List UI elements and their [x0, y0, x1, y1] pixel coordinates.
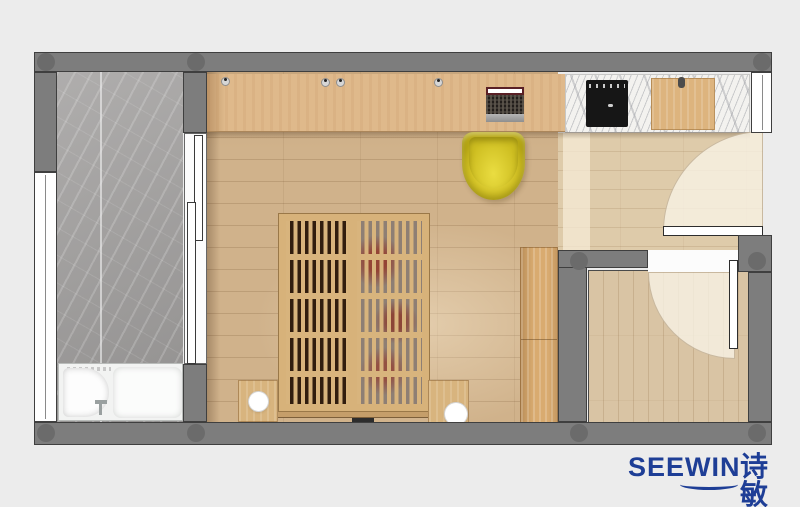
laptop-screen — [486, 87, 524, 95]
desk-grommet — [336, 78, 345, 87]
desk-grommet — [221, 77, 230, 86]
bed-slats-right — [357, 221, 422, 404]
sliding-door-panel — [187, 202, 196, 364]
bathtub-seat-section — [63, 368, 109, 417]
wall-partition-top — [183, 72, 207, 133]
column-dot — [570, 252, 588, 270]
interior-door-leaf — [729, 260, 738, 349]
bathtub — [58, 363, 183, 421]
column-dot — [748, 252, 766, 270]
wall-bottom — [34, 422, 772, 445]
round-lamp-left — [249, 392, 268, 411]
brand-logo-text-cn: 诗敏 — [740, 453, 768, 507]
bathtub-basin-section — [113, 367, 182, 418]
window-mullion — [45, 175, 46, 419]
desk-grommet — [434, 78, 443, 87]
wall-right — [748, 272, 772, 422]
cooktop-controls — [589, 84, 625, 88]
column-dot — [570, 424, 588, 442]
hall-threshold-strip — [563, 133, 590, 250]
laptop-palmrest — [486, 114, 524, 122]
column-dot — [187, 424, 205, 442]
wardrobe-cabinet — [520, 247, 558, 423]
counter-shadow — [565, 132, 750, 139]
cutting-board — [651, 78, 715, 130]
top-right-exterior-window — [751, 72, 772, 133]
wall-top — [34, 52, 772, 72]
chair-seat — [469, 137, 518, 188]
cabinet-door-divider — [521, 339, 557, 340]
faucet-stem — [99, 400, 102, 415]
laptop-keyboard — [486, 95, 524, 114]
left-exterior-window — [34, 172, 57, 422]
brand-logo-text-en: SEEWIN — [628, 454, 741, 481]
column-dot — [37, 53, 55, 71]
cooktop-burner-mark — [608, 104, 613, 107]
desk-grommet — [321, 78, 330, 87]
column-dot — [187, 53, 205, 71]
cutting-board-handle-slot — [678, 77, 685, 88]
brand-logo-swoosh — [680, 479, 738, 490]
wall-left-upper — [34, 72, 57, 172]
floor-plan-canvas: SEEWIN 诗敏 — [0, 0, 800, 507]
column-dot — [748, 424, 766, 442]
induction-cooktop — [586, 80, 628, 127]
bed-slats-left — [286, 221, 348, 404]
window-mullion — [762, 75, 763, 130]
column-dot — [753, 53, 771, 71]
wall-partition-bottom — [183, 364, 207, 422]
slatted-platform-bed — [278, 213, 430, 425]
column-dot — [37, 424, 55, 442]
secondary-room-doorway — [648, 250, 738, 272]
wall-divider-vertical — [558, 250, 587, 422]
